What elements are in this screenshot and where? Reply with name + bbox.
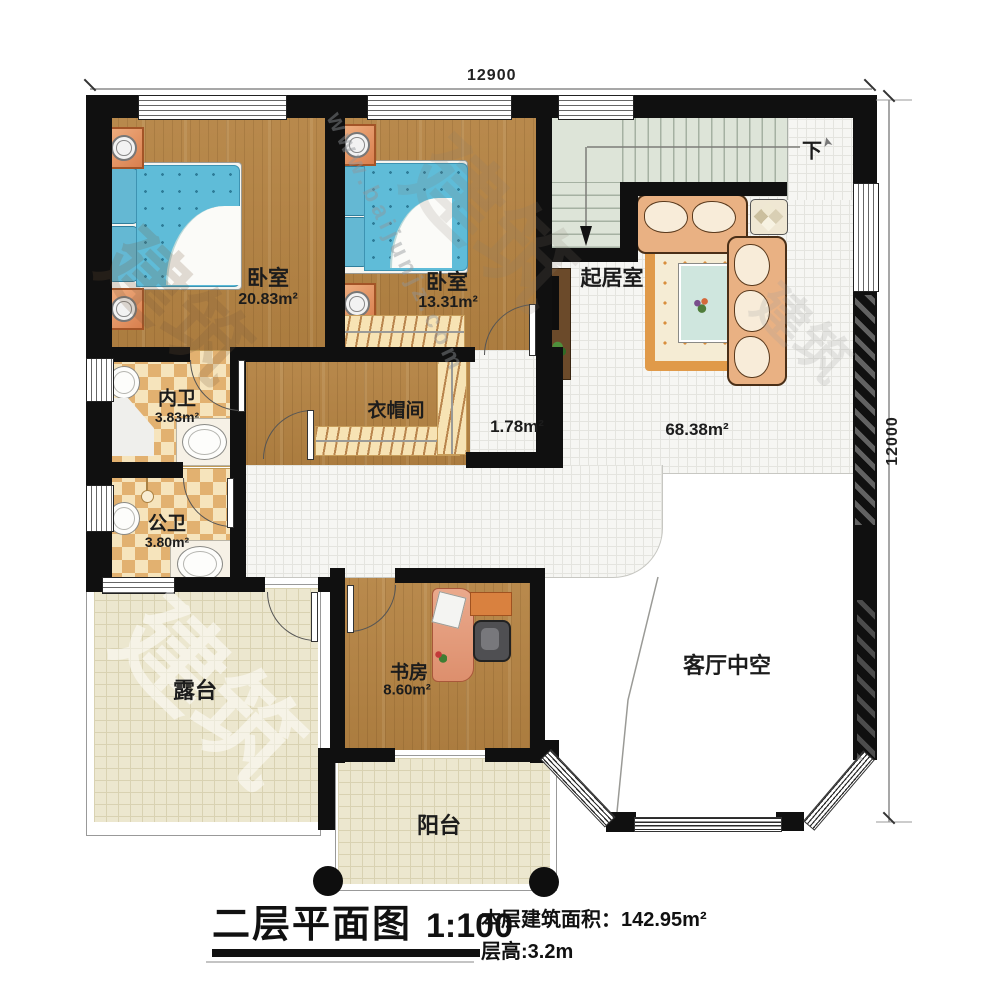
- window: [86, 485, 114, 532]
- door-leaf: [238, 360, 245, 412]
- room-label-balcony: 阳台: [417, 808, 461, 840]
- wall: [86, 577, 102, 592]
- stairs-treads: [622, 110, 787, 182]
- dim-tick: [883, 90, 896, 103]
- window: [102, 577, 175, 594]
- bay-window: [634, 817, 782, 832]
- door-leaf: [227, 478, 234, 528]
- caption-underline: [212, 949, 480, 957]
- room-area-study: 8.60m²: [383, 682, 431, 699]
- bay-window: [803, 750, 875, 830]
- room-label-study: 书房: [390, 658, 428, 685]
- room-area-bedroom1: 20.83m²: [238, 291, 298, 309]
- stairs-landing: [552, 182, 620, 248]
- caption-floor-area-label: 本层建筑面积：: [481, 909, 621, 931]
- room-area-inner-bath: 3.83m²: [155, 409, 199, 425]
- window: [86, 358, 114, 402]
- desk-plant: [434, 650, 447, 663]
- room-area-public-bath: 3.80m²: [145, 534, 189, 550]
- room-label-bedroom2: 卧室: [426, 266, 468, 296]
- ceiling-lamp: [141, 490, 154, 503]
- wall: [325, 95, 345, 357]
- wall: [243, 347, 330, 362]
- wall: [620, 182, 787, 196]
- coffee-table-flowers: [692, 296, 710, 314]
- bed-pillow: [108, 168, 138, 224]
- wall: [86, 462, 183, 478]
- wall: [173, 577, 265, 592]
- room-label-inner-bath: 内卫: [158, 384, 196, 411]
- column: [529, 867, 559, 897]
- tv: [552, 276, 559, 330]
- room-label-public-bath: 公卫: [148, 509, 186, 536]
- room-label-terrace: 露台: [173, 673, 217, 705]
- caption-title: 二层平面图: [212, 904, 412, 946]
- dim-tick: [864, 79, 877, 92]
- desk-chair: [473, 620, 511, 662]
- window: [367, 95, 512, 120]
- wardrobe: [337, 315, 465, 349]
- sofa-sectional: [727, 236, 787, 386]
- desk-cabinet: [470, 592, 512, 616]
- wall: [530, 568, 545, 763]
- wall: [330, 748, 395, 762]
- room-label-bedroom1: 卧室: [247, 262, 289, 292]
- corridor-floor: [238, 465, 663, 578]
- watermark-noise: [857, 600, 875, 760]
- room-label-void: 客厅中空: [683, 648, 771, 680]
- door-leaf: [347, 585, 354, 633]
- wall: [395, 568, 536, 583]
- dim-tick: [84, 79, 97, 92]
- sink: [182, 424, 227, 460]
- wall: [325, 347, 475, 362]
- bed-pillow: [108, 226, 138, 282]
- window: [138, 95, 287, 120]
- column: [313, 866, 343, 896]
- window: [853, 183, 879, 292]
- dim-tick: [883, 812, 896, 825]
- caption-floor-height: 层高:3.2m: [481, 941, 573, 963]
- end-table: [750, 199, 788, 235]
- wall: [330, 568, 345, 763]
- wall: [485, 748, 545, 762]
- room-area-bedroom2: 13.31m²: [418, 294, 478, 312]
- watermark-noise: [855, 295, 875, 525]
- window: [558, 95, 634, 120]
- door-leaf: [307, 410, 314, 460]
- room-area-living: 68.38m²: [665, 420, 728, 440]
- room-area-nook: 1.78m²: [490, 417, 544, 437]
- door-leaf: [311, 592, 318, 642]
- dim-width: 12900: [467, 67, 517, 85]
- floor-plan-page: www.baijunjz.com 建筑 建筑 建筑 建筑 卧室 20.83m² …: [0, 0, 1000, 990]
- cloakroom-wardrobe: [437, 353, 467, 455]
- wall: [318, 748, 335, 830]
- caption-underline-thin: [206, 961, 474, 963]
- room-label-living: 起居室: [581, 262, 644, 292]
- dim-height: 12000: [884, 416, 902, 466]
- caption-floor-area-value: 142.95m²: [621, 909, 707, 931]
- wall: [620, 182, 638, 262]
- door-leaf: [529, 304, 536, 356]
- room-label-cloakroom: 衣帽间: [367, 396, 424, 423]
